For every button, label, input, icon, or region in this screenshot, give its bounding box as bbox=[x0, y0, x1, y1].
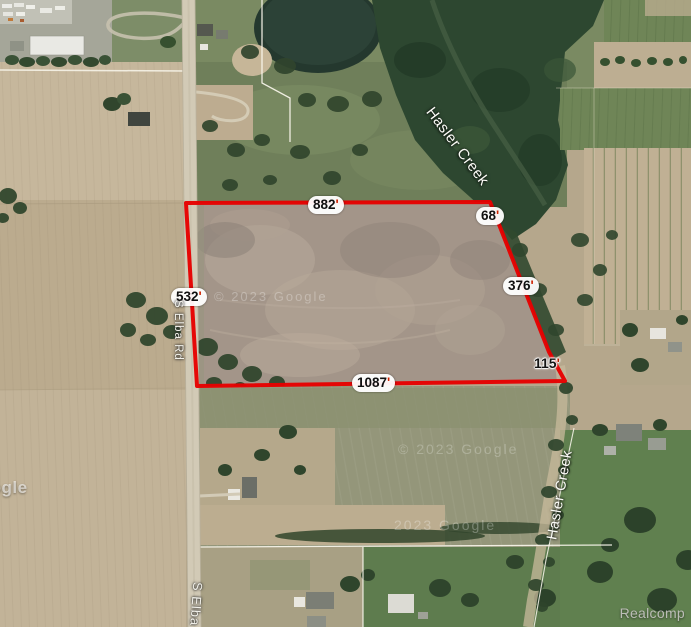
aerial-parcel-map: 882' 68' 376' 115' 1087' 532' S Elba Rd … bbox=[0, 0, 691, 627]
top-left-industrial-yard bbox=[0, 0, 112, 67]
upper-left-lawn bbox=[108, 0, 186, 62]
south-meadow bbox=[188, 386, 570, 547]
section-line-west bbox=[0, 70, 186, 71]
aerial-imagery bbox=[0, 0, 691, 627]
